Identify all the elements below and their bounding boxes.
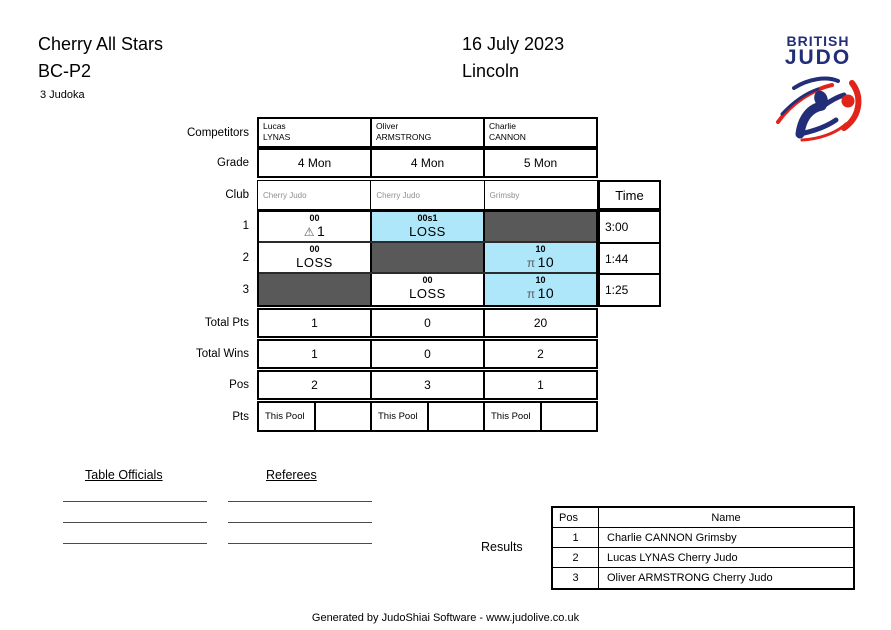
generator-credit: Generated by JudoShiai Software - www.ju… bbox=[0, 612, 891, 624]
score-code: 00s1 bbox=[372, 213, 483, 224]
row-label-total-pts: Total Pts bbox=[135, 308, 257, 338]
signature-line bbox=[63, 543, 207, 544]
time-column-header: Time bbox=[598, 180, 661, 210]
judoka-count: 3 Judoka bbox=[40, 89, 85, 101]
competitor-name-3: Charlie CANNON bbox=[485, 119, 596, 146]
signature-line bbox=[63, 522, 207, 523]
result-name: Oliver ARMSTRONG Cherry Judo bbox=[599, 568, 853, 588]
match-cell-loss: 00 LOSS bbox=[259, 243, 372, 272]
row-label-pos: Pos bbox=[135, 370, 257, 400]
signatures-section: Table Officials Referees bbox=[63, 468, 375, 552]
this-pool-cell: This Pool bbox=[259, 403, 316, 430]
event-title: Cherry All Stars bbox=[38, 34, 163, 55]
competitor-last-name: ARMSTRONG bbox=[376, 132, 479, 143]
signature-line bbox=[228, 501, 372, 502]
pts-column: This Pool bbox=[485, 403, 596, 430]
row-label-pts: Pts bbox=[135, 401, 257, 432]
total-pts-value: 0 bbox=[372, 310, 485, 336]
row-label-club: Club bbox=[135, 180, 257, 210]
competitor-name-1: Lucas LYNAS bbox=[259, 119, 372, 146]
pos-value: 2 bbox=[259, 372, 372, 398]
pos-value: 3 bbox=[372, 372, 485, 398]
ippon-icon: π bbox=[527, 287, 536, 301]
signature-line bbox=[63, 501, 207, 502]
pts-blank-cell bbox=[542, 403, 597, 430]
win-by-penalty-icon: ⚠ bbox=[304, 225, 315, 239]
match-cell-win: 10 π10 bbox=[485, 243, 596, 272]
match-row-1: 00 ⚠1 00s1 LOSS bbox=[259, 212, 596, 243]
match-cell-not-playing bbox=[485, 212, 596, 241]
results-table: Pos Name 1 Charlie CANNON Grimsby 2 Luca… bbox=[551, 506, 855, 590]
loss-label: LOSS bbox=[372, 286, 483, 301]
match-number: 3 bbox=[135, 274, 257, 306]
match-number: 2 bbox=[135, 242, 257, 274]
match-number: 1 bbox=[135, 210, 257, 242]
grade-value: 4 Mon bbox=[372, 150, 485, 176]
grade-value: 4 Mon bbox=[259, 150, 372, 176]
match-time: 1:25 bbox=[600, 275, 659, 305]
loss-label: LOSS bbox=[372, 224, 483, 239]
row-label-grade: Grade bbox=[135, 148, 257, 178]
results-label: Results bbox=[481, 540, 523, 554]
result-pos: 2 bbox=[553, 548, 599, 567]
total-pts-value: 1 bbox=[259, 310, 372, 336]
match-times-column: 3:00 1:44 1:25 bbox=[598, 210, 661, 307]
score-code: 00 bbox=[259, 213, 370, 224]
match-cell-loss: 00s1 LOSS bbox=[372, 212, 485, 241]
judo-figure-icon bbox=[768, 72, 868, 149]
table-officials-heading: Table Officials bbox=[85, 468, 163, 482]
pool-grid: Competitors Lucas LYNAS Oliver ARMSTRONG… bbox=[135, 117, 665, 432]
results-row: 1 Charlie CANNON Grimsby bbox=[553, 528, 853, 548]
total-pts-value: 20 bbox=[485, 310, 596, 336]
match-cell-not-playing bbox=[259, 274, 372, 305]
this-pool-cell: This Pool bbox=[372, 403, 429, 430]
pos-value: 1 bbox=[485, 372, 596, 398]
club-value: Grimsby bbox=[485, 181, 597, 209]
grade-value: 5 Mon bbox=[485, 150, 596, 176]
event-date: 16 July 2023 bbox=[462, 34, 564, 55]
total-wins-value: 0 bbox=[372, 341, 485, 367]
logo-text-judo: JUDO bbox=[768, 46, 868, 70]
event-location: Lincoln bbox=[462, 61, 519, 82]
match-time: 1:44 bbox=[600, 244, 659, 276]
referees-heading: Referees bbox=[266, 468, 317, 482]
result-name: Charlie CANNON Grimsby bbox=[599, 528, 853, 547]
pts-blank-cell bbox=[429, 403, 484, 430]
category-code: BC-P2 bbox=[38, 61, 91, 82]
win-points: 10 bbox=[538, 254, 555, 270]
match-row-2: 00 LOSS 10 π10 bbox=[259, 243, 596, 274]
ippon-icon: π bbox=[527, 256, 536, 270]
match-row-3: 00 LOSS 10 π10 bbox=[259, 274, 596, 305]
match-cell-loss: 00 LOSS bbox=[372, 274, 485, 305]
score-code: 00 bbox=[259, 244, 370, 255]
club-value: Cherry Judo bbox=[371, 181, 484, 209]
competitor-first-name: Oliver bbox=[376, 121, 479, 132]
match-time: 3:00 bbox=[600, 212, 659, 244]
total-wins-value: 2 bbox=[485, 341, 596, 367]
total-wins-value: 1 bbox=[259, 341, 372, 367]
this-pool-cell: This Pool bbox=[485, 403, 542, 430]
signature-line bbox=[228, 522, 372, 523]
competitor-last-name: LYNAS bbox=[263, 132, 366, 143]
score-code: 00 bbox=[372, 275, 483, 286]
results-row: 3 Oliver ARMSTRONG Cherry Judo bbox=[553, 568, 853, 588]
signature-line bbox=[228, 543, 372, 544]
pts-column: This Pool bbox=[259, 403, 372, 430]
win-points: 10 bbox=[538, 285, 555, 301]
match-cell-win: 00 ⚠1 bbox=[259, 212, 372, 241]
pool-sheet-page: Cherry All Stars BC-P2 3 Judoka 16 July … bbox=[0, 0, 891, 630]
competitor-first-name: Lucas bbox=[263, 121, 366, 132]
pts-column: This Pool bbox=[372, 403, 485, 430]
pts-blank-cell bbox=[316, 403, 371, 430]
loss-label: LOSS bbox=[259, 255, 370, 270]
competitor-name-2: Oliver ARMSTRONG bbox=[372, 119, 485, 146]
row-label-competitors: Competitors bbox=[135, 117, 257, 148]
results-header-pos: Pos bbox=[553, 508, 599, 527]
club-value: Cherry Judo bbox=[258, 181, 371, 209]
results-header-row: Pos Name bbox=[553, 508, 853, 528]
results-header-name: Name bbox=[599, 508, 853, 527]
results-row: 2 Lucas LYNAS Cherry Judo bbox=[553, 548, 853, 568]
result-pos: 1 bbox=[553, 528, 599, 547]
row-label-total-wins: Total Wins bbox=[135, 339, 257, 369]
win-points: 1 bbox=[317, 223, 325, 239]
result-name: Lucas LYNAS Cherry Judo bbox=[599, 548, 853, 567]
result-pos: 3 bbox=[553, 568, 599, 588]
match-results-grid: 00 ⚠1 00s1 LOSS 00 LOSS bbox=[257, 210, 598, 307]
competitor-first-name: Charlie bbox=[489, 121, 592, 132]
british-judo-logo: BRITISH JUDO bbox=[768, 33, 868, 149]
match-cell-win: 10 π10 bbox=[485, 274, 596, 305]
match-cell-not-playing bbox=[372, 243, 485, 272]
competitor-last-name: CANNON bbox=[489, 132, 592, 143]
